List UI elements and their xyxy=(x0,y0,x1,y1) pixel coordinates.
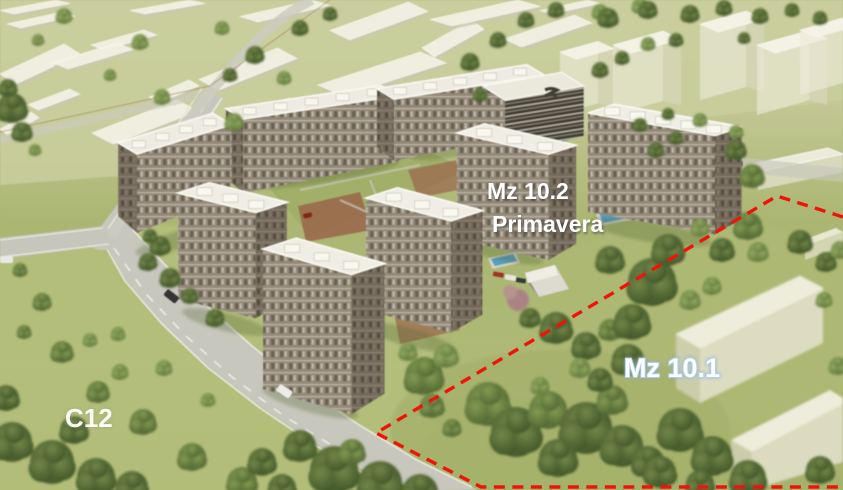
svg-text:Primavera: Primavera xyxy=(492,211,603,237)
svg-text:Mz 10.1: Mz 10.1 xyxy=(624,353,720,383)
svg-text:Mz 10.2: Mz 10.2 xyxy=(487,178,569,204)
svg-text:C12: C12 xyxy=(65,403,113,433)
